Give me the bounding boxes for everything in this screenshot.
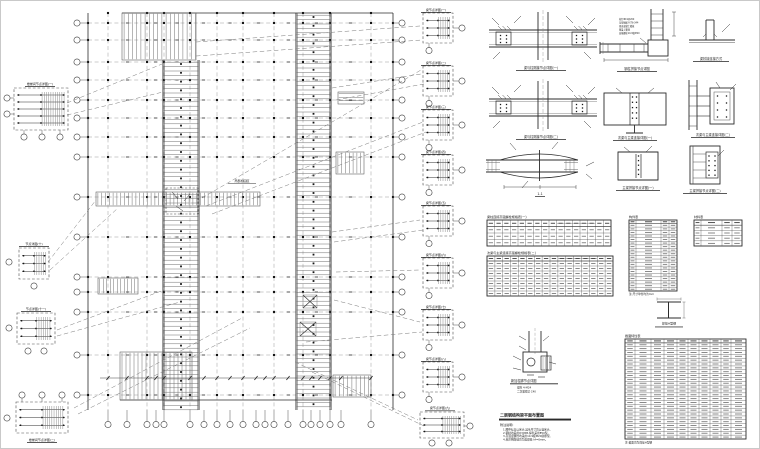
glyph-caption: 焊接H型钢 — [662, 321, 676, 326]
detail-annotation: 压型钢板YX76-344 — [619, 21, 639, 25]
detail-caption: 新加柱脚节点详图 — [511, 378, 537, 383]
table-title: 构件表 — [629, 214, 638, 219]
callout-caption: 梁节点详图(六) — [426, 252, 446, 257]
detail-callout: 梁节点详图(五) — [421, 200, 465, 247]
main-plan: 局部加固区 — [74, 12, 405, 428]
detail-callout: 梁节点详图(三) — [421, 104, 465, 151]
schedule-table: 梁柱连接高强螺栓规格表(一) — [487, 214, 611, 246]
structural-drawing: 局部加固区 梁节点详图(一)梁节点详图(二)梁节点详图(三)梁节点详图(四)梁节… — [0, 0, 760, 449]
detail-caption: 梁与柱刚接节点详图(一) — [524, 65, 558, 70]
detail-callout: 梁节点详图(二) — [421, 60, 465, 107]
detail-caption: 主梁拼接节点详图(一) — [622, 185, 653, 190]
callout-caption: 梁节点详图(七) — [426, 304, 446, 309]
detail-caption: 梁铰接连接方式 — [700, 56, 723, 61]
drawing-page: 局部加固区 梁节点详图(一)梁节点详图(二)梁节点详图(三)梁节点详图(四)梁节… — [0, 0, 760, 449]
schedule-tables: 梁柱连接高强螺栓规格表(一)次梁与主梁连接高强螺栓规格表(二)构件表注:尺寸单位… — [487, 214, 746, 445]
detail-moment-connection: 梁与柱刚接节点详图(二) — [489, 79, 597, 140]
table-title: 次梁与主梁连接高强螺栓规格表(二) — [487, 250, 536, 255]
detail-annotation: 现浇混凝土楼板 — [619, 24, 635, 28]
callout-caption: 节点详图(十一) — [26, 306, 46, 311]
detail-caption: 梁与柱刚接节点详图(二) — [524, 134, 558, 139]
detail-callout: 楼梯间节点详图(一) — [4, 81, 68, 140]
detail-secondary-beam-a: 次梁与主梁连接详图(一) — [604, 88, 666, 141]
detail-caption: 1-1 — [537, 192, 542, 196]
leader-lines — [48, 26, 426, 426]
detail-callout: 梁节点详图(六) — [421, 252, 465, 299]
table-title: 梁柱连接高强螺栓规格表(一) — [487, 214, 527, 219]
detail-secondary-beam-b: 次梁与主梁连接详图(二) — [689, 80, 736, 138]
schedule-table: 截面特性表注:截面均为焊接H型钢 — [625, 333, 746, 445]
detail-subcaption: 二次灌浆层 C40 — [517, 389, 536, 393]
callout-caption: 梁节点详图(二) — [426, 60, 446, 65]
schedule-table: 材料表 — [694, 214, 742, 246]
section-glyph: 焊接H型钢 — [655, 298, 686, 328]
callout-caption: 梁节点详图(一) — [426, 7, 446, 12]
detail-callout: 梁节点详图(九) — [420, 405, 473, 446]
area-label: 局部加固区 — [234, 178, 249, 183]
detail-callout: 梁节点详图(七) — [421, 304, 465, 351]
callout-caption: 梁节点详图(四) — [426, 149, 446, 154]
callout-caption: 梁节点详图(三) — [426, 104, 446, 109]
callout-caption: 梁节点详图(八) — [426, 356, 446, 361]
detail-caption: 次梁与主梁连接详图(二) — [696, 132, 730, 137]
detail-callout: 梁节点详图(八) — [421, 356, 465, 403]
detail-callout: 节点详图(十一) — [6, 306, 55, 354]
notes-block: 二层钢结构梁平面布置图附注说明:1.图中标高以米计,其余尺寸均以毫米计。2.钢材… — [499, 412, 571, 442]
detail-caption: 钢柱拼接节点详图 — [624, 66, 650, 71]
schedule-table: 构件表注:尺寸单位均为mm — [629, 214, 677, 296]
detail-annotation: 高强螺栓10.9级M20 — [619, 31, 640, 35]
detail-callout: 节点详图(十) — [6, 241, 49, 289]
detail-beam-splice-plan: 1-1 — [486, 142, 594, 197]
table-footer: 注:尺寸单位均为mm — [629, 292, 654, 296]
callout-caption: 楼梯间节点详图(二) — [29, 437, 55, 442]
callout-caption: 梁节点详图(五) — [426, 200, 446, 205]
detail-annotation: 钢梁上翼缘 — [619, 28, 631, 32]
callout-caption: 楼梯间节点详图(一) — [27, 81, 53, 86]
detail-callout: 梁节点详图(一) — [421, 7, 465, 54]
table-title: 截面特性表 — [625, 333, 640, 338]
detail-caption: 次梁与主梁连接详图(一) — [618, 135, 652, 140]
callout-caption: 节点详图(十) — [25, 241, 42, 246]
detail-caption: 主梁拼接节点详图(二) — [689, 188, 720, 193]
detail-views: 梁与柱刚接节点详图(一)梁与柱刚接节点详图(二)栓钉Φ19@200压型钢板YX7… — [486, 9, 736, 393]
detail-girder-splice-1: 主梁拼接节点详图(一) — [616, 146, 660, 191]
detail-hinge-connection: 梁铰接连接方式 — [689, 20, 735, 62]
detail-column-splice: 栓钉Φ19@200压型钢板YX76-344现浇混凝土楼板钢梁上翼缘高强螺栓10.… — [600, 9, 676, 72]
detail-subcaption: 锚栓 4-M24 — [517, 385, 531, 389]
detail-callout: 楼梯间节点详图(二) — [4, 392, 68, 443]
detail-annotation: 栓钉Φ19@200 — [619, 17, 635, 21]
detail-moment-connection: 梁与柱刚接节点详图(一) — [489, 10, 597, 71]
plan-callouts: 梁节点详图(一)梁节点详图(二)梁节点详图(三)梁节点详图(四)梁节点详图(五)… — [4, 7, 473, 446]
schedule-table: 次梁与主梁连接高强螺栓规格表(二) — [487, 250, 613, 296]
table-title: 材料表 — [694, 214, 703, 219]
notes-heading: 附注说明: — [500, 422, 513, 427]
note-line: 4.未注明焊缝均为角焊缝 hf=6mm。 — [503, 438, 548, 442]
notes-title: 二层钢结构梁平面布置图 — [500, 412, 544, 418]
detail-callout: 梁节点详图(四) — [421, 149, 465, 196]
table-footer: 注:截面均为焊接H型钢 — [625, 441, 652, 445]
callout-caption: 梁节点详图(九) — [430, 405, 450, 410]
detail-column-base: 新加柱脚节点详图锚栓 4-M24二次灌浆层 C40 — [510, 328, 558, 393]
detail-girder-splice-2: 主梁拼接节点详图(二) — [683, 146, 727, 194]
